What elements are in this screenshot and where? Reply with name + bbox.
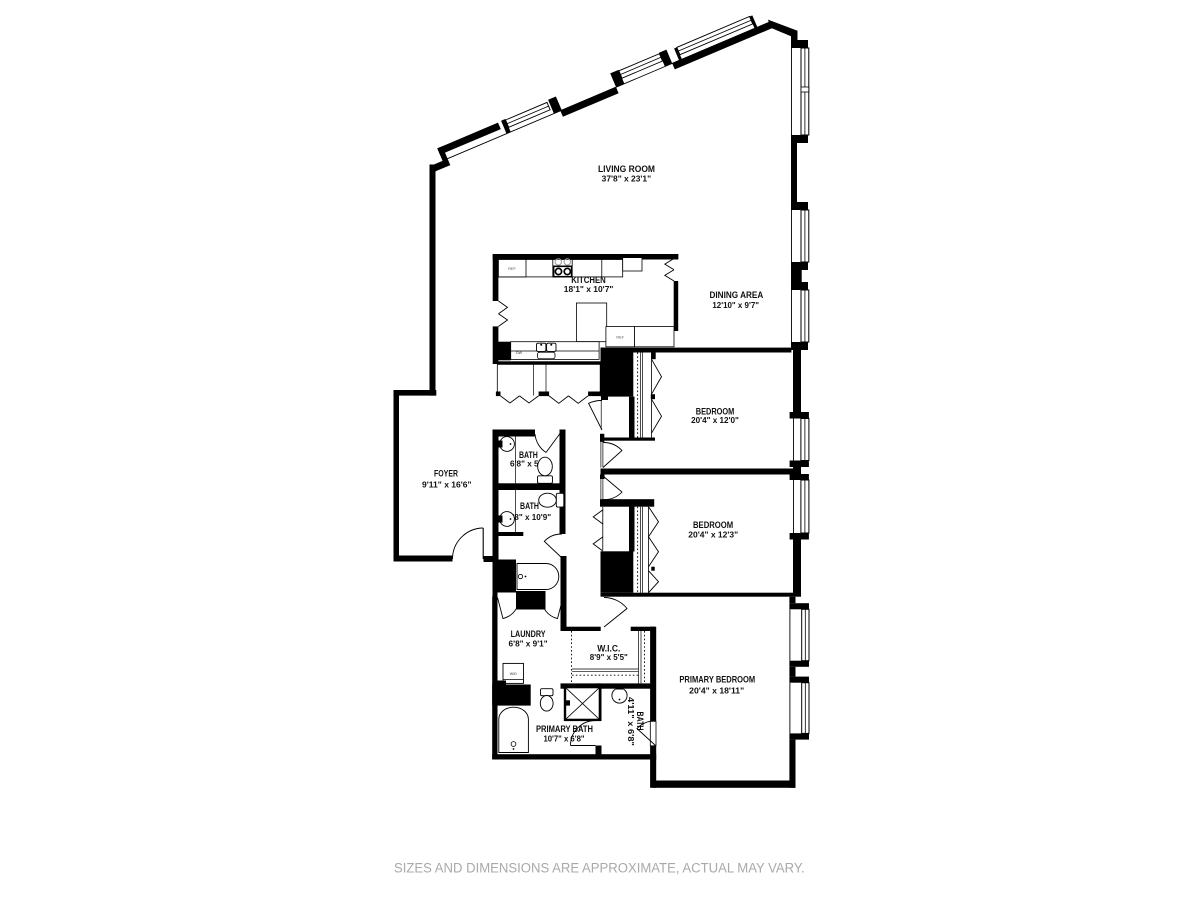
svg-text:4'11" x 6'8": 4'11" x 6'8" bbox=[626, 697, 636, 746]
svg-text:PRIMARY BATH: PRIMARY BATH bbox=[536, 724, 593, 734]
svg-text:SIZES AND DIMENSIONS ARE APPRO: SIZES AND DIMENSIONS ARE APPROXIMATE, AC… bbox=[394, 861, 805, 876]
svg-text:LIVING ROOM: LIVING ROOM bbox=[598, 164, 655, 174]
svg-text:FOYER: FOYER bbox=[434, 469, 458, 479]
svg-text:BATH: BATH bbox=[520, 501, 539, 511]
svg-text:PRIMARY BEDROOM: PRIMARY BEDROOM bbox=[679, 675, 755, 685]
svg-text:18'1" x 10'7": 18'1" x 10'7" bbox=[564, 284, 614, 294]
svg-text:DINING AREA: DINING AREA bbox=[710, 290, 764, 300]
svg-text:20'4" x 12'0": 20'4" x 12'0" bbox=[691, 415, 739, 425]
svg-text:20'4" x 12'3": 20'4" x 12'3" bbox=[688, 530, 738, 540]
svg-text:REF: REF bbox=[616, 335, 624, 339]
svg-text:20'4" x 18'11": 20'4" x 18'11" bbox=[689, 686, 744, 696]
svg-text:W/D: W/D bbox=[510, 672, 517, 676]
svg-text:REF: REF bbox=[508, 267, 516, 271]
svg-text:8'9" x 5'5": 8'9" x 5'5" bbox=[590, 652, 628, 662]
svg-text:LAUNDRY: LAUNDRY bbox=[511, 629, 546, 639]
svg-text:9'11" x 16'6": 9'11" x 16'6" bbox=[422, 479, 472, 489]
svg-text:6'8" x 9'1": 6'8" x 9'1" bbox=[509, 639, 548, 649]
svg-text:BEDROOM: BEDROOM bbox=[693, 520, 733, 530]
svg-text:37'8" x 23'1": 37'8" x 23'1" bbox=[602, 174, 651, 184]
svg-text:12'10" x 9'7": 12'10" x 9'7" bbox=[712, 300, 759, 310]
svg-text:10'7" x 6'8": 10'7" x 6'8" bbox=[543, 734, 584, 744]
svg-text:DW: DW bbox=[516, 351, 523, 355]
